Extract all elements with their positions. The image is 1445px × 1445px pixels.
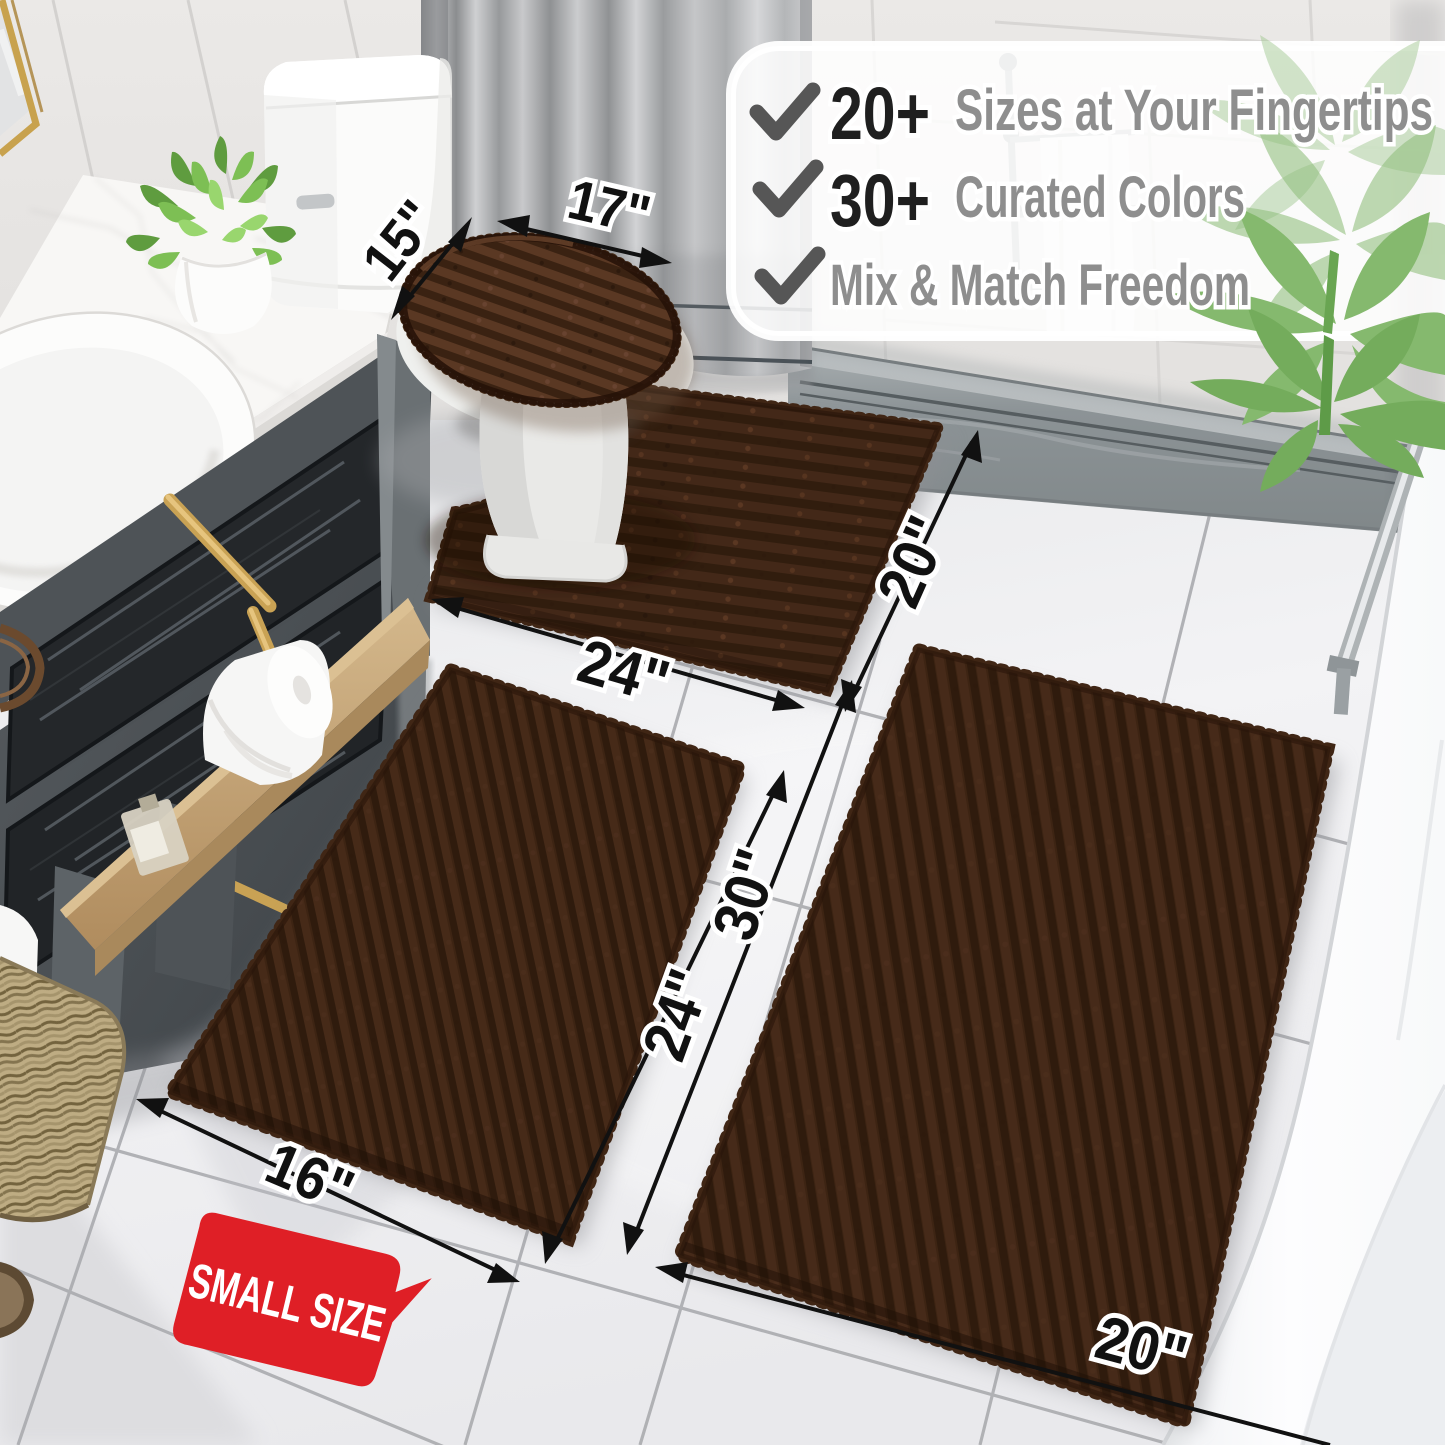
svg-text:Curated Colors: Curated Colors bbox=[955, 165, 1245, 230]
svg-text:30+: 30+ bbox=[830, 159, 930, 242]
svg-text:Mix & Match Freedom: Mix & Match Freedom bbox=[830, 253, 1250, 318]
svg-text:Sizes at Your Fingertips: Sizes at Your Fingertips bbox=[955, 78, 1433, 143]
svg-text:20+: 20+ bbox=[830, 72, 930, 155]
